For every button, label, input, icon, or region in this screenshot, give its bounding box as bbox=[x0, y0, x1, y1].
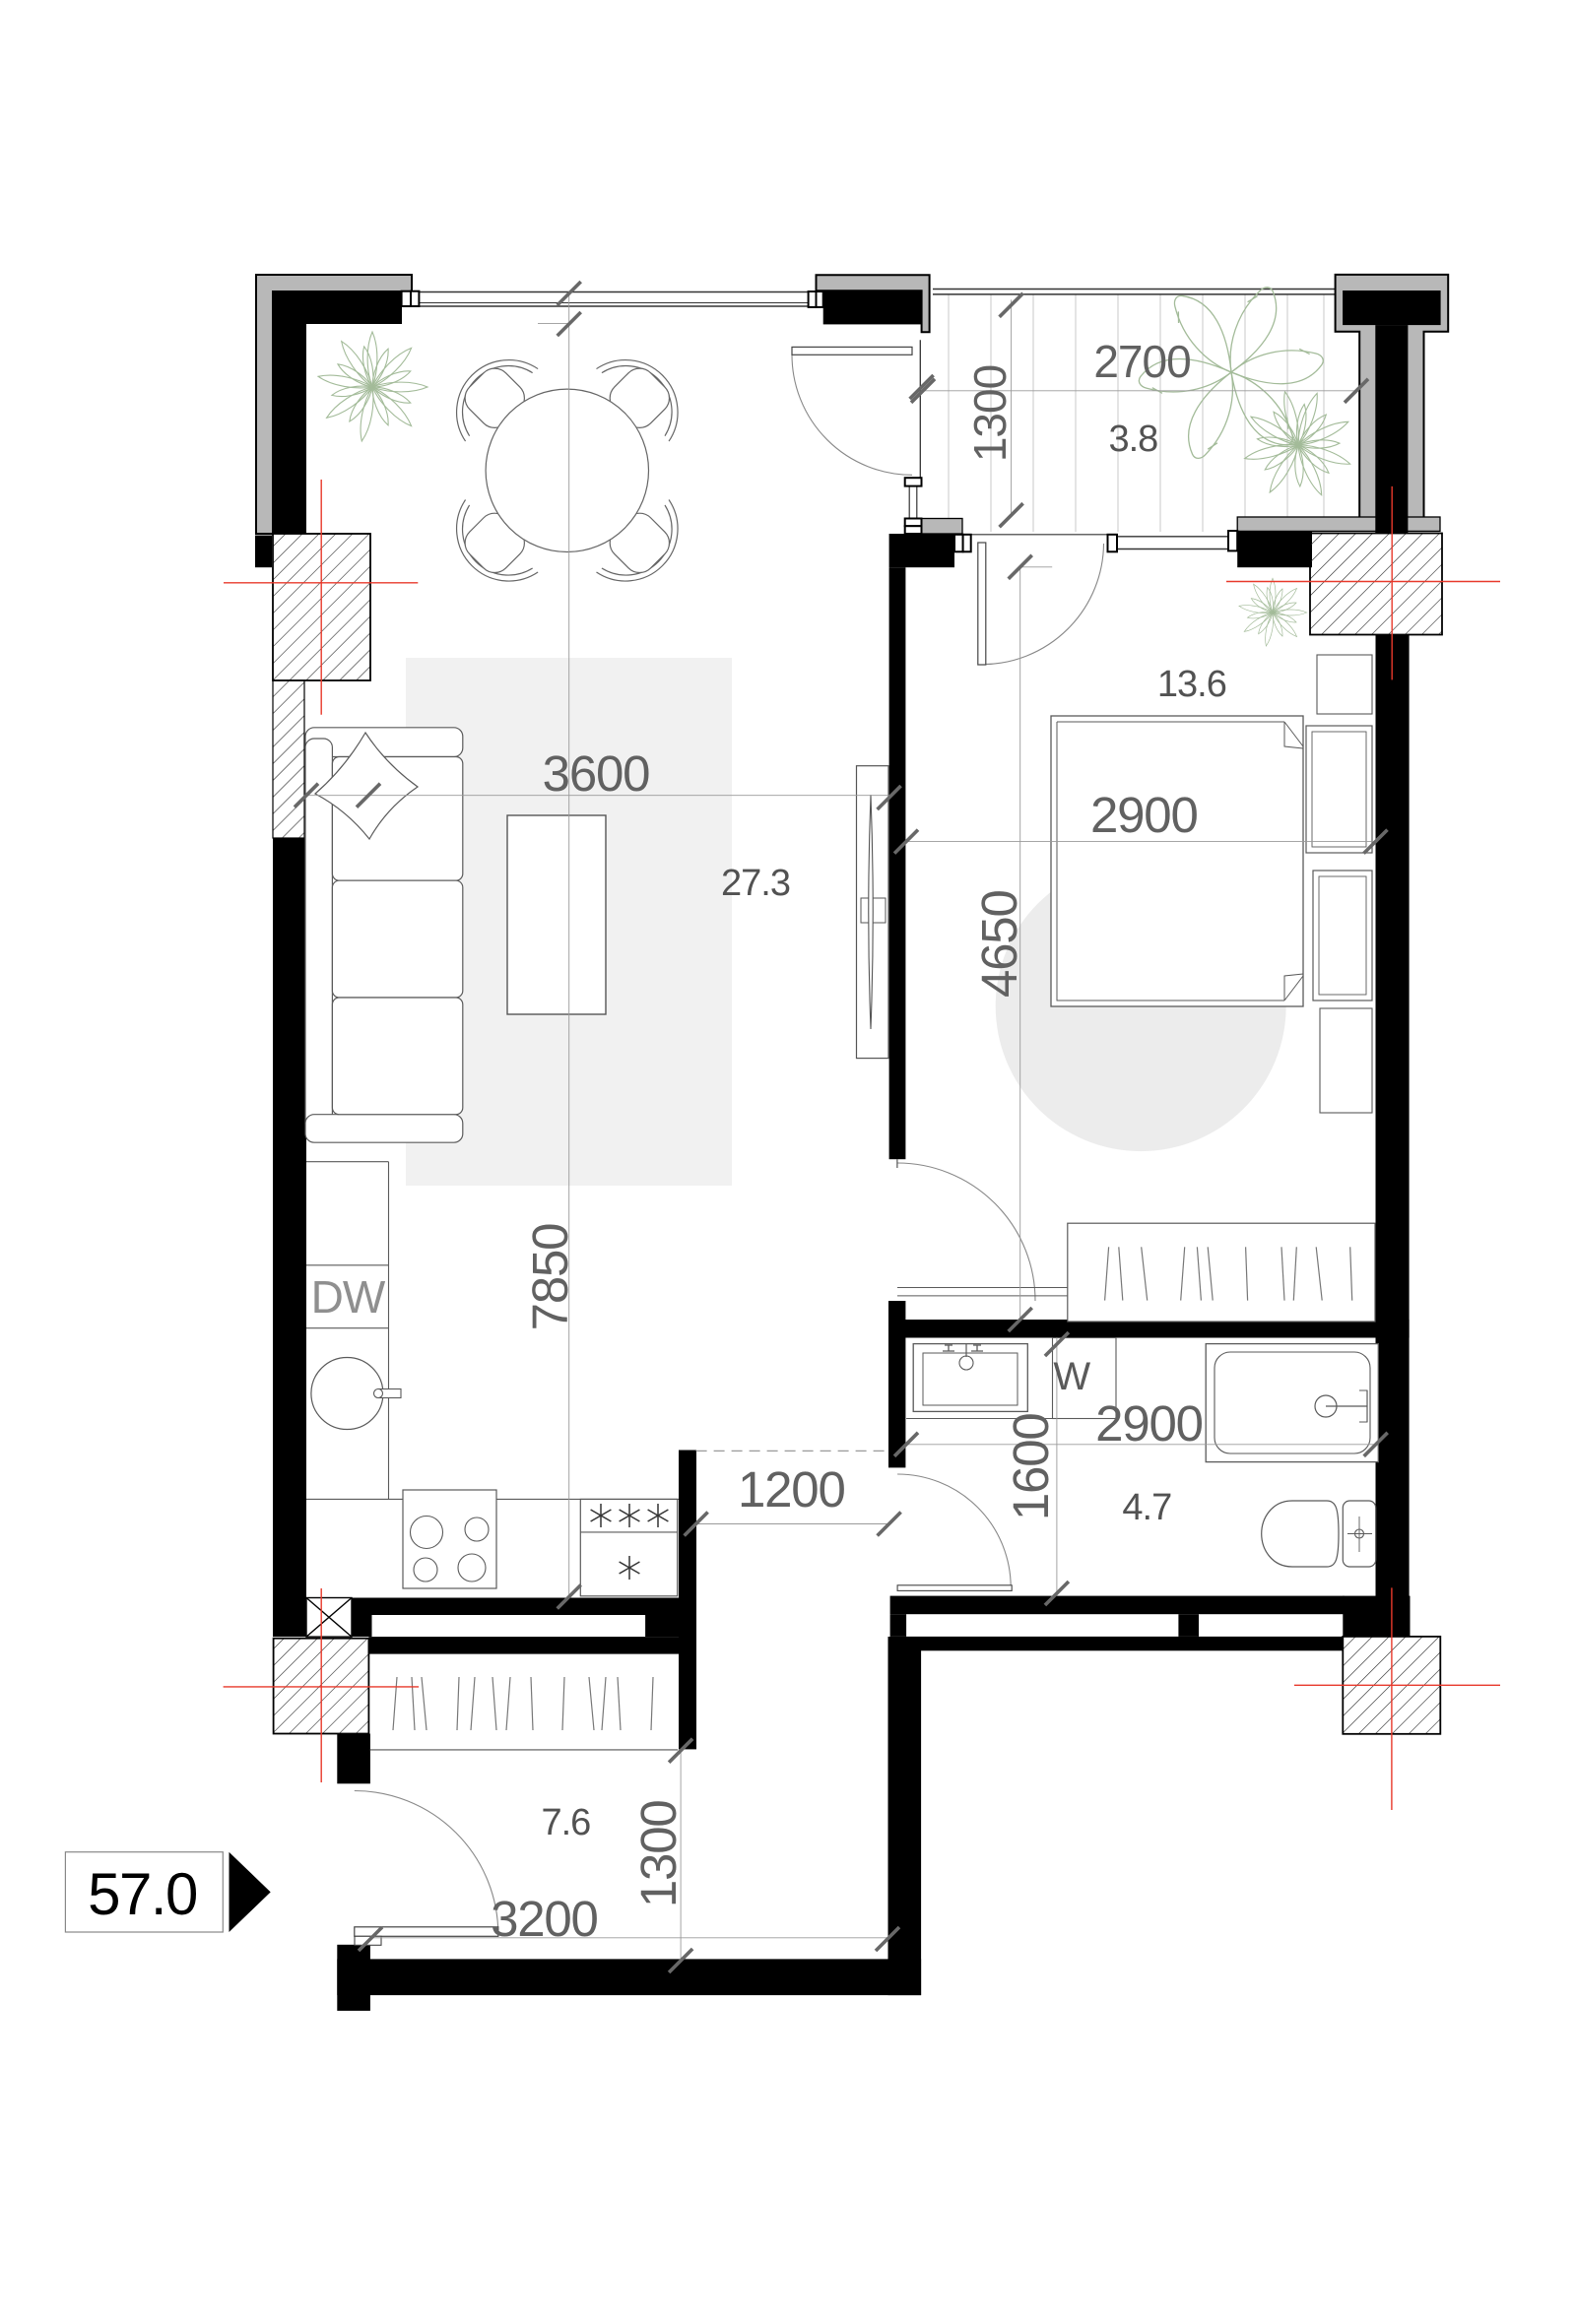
svg-text:W: W bbox=[1053, 1355, 1090, 1398]
svg-text:7.6: 7.6 bbox=[541, 1802, 590, 1843]
svg-text:4.7: 4.7 bbox=[1122, 1487, 1171, 1528]
svg-text:13.6: 13.6 bbox=[1157, 664, 1226, 705]
svg-text:1200: 1200 bbox=[738, 1461, 845, 1517]
svg-text:1300: 1300 bbox=[964, 365, 1016, 462]
svg-text:27.3: 27.3 bbox=[721, 863, 790, 904]
svg-text:2700: 2700 bbox=[1093, 336, 1190, 387]
svg-text:4650: 4650 bbox=[971, 890, 1027, 998]
svg-text:3600: 3600 bbox=[543, 745, 650, 802]
svg-text:1300: 1300 bbox=[630, 1800, 687, 1907]
svg-text:1600: 1600 bbox=[1003, 1413, 1059, 1520]
svg-text:2900: 2900 bbox=[1095, 1395, 1203, 1452]
svg-text:7850: 7850 bbox=[522, 1224, 578, 1331]
svg-text:3.8: 3.8 bbox=[1108, 419, 1157, 460]
svg-text:2900: 2900 bbox=[1090, 787, 1198, 843]
svg-text:57.0: 57.0 bbox=[88, 1861, 197, 1927]
svg-text:DW: DW bbox=[311, 1271, 386, 1323]
svg-text:3200: 3200 bbox=[491, 1891, 598, 1947]
